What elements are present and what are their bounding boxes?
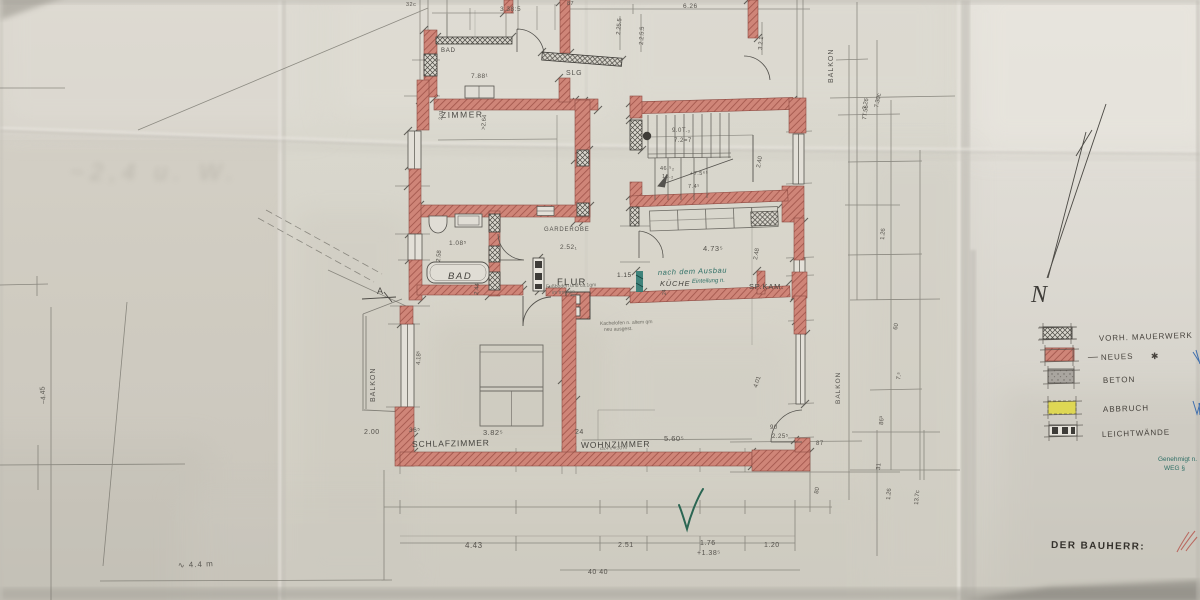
svg-text:4.73⁵: 4.73⁵ (703, 244, 723, 253)
svg-text:✱: ✱ (1151, 351, 1159, 361)
svg-text:32c: 32c (406, 2, 416, 8)
svg-text:SLG: SLG (566, 70, 582, 77)
svg-text:16.₂: 16.₂ (662, 174, 674, 180)
svg-text:24: 24 (575, 429, 584, 436)
svg-text:BAD: BAD (448, 271, 472, 282)
svg-text:Einteilung n.: Einteilung n. (692, 278, 725, 285)
svg-text:1.26: 1.26 (886, 487, 893, 500)
svg-text:BAD: BAD (441, 48, 456, 54)
svg-text:3.38:5: 3.38:5 (500, 6, 521, 13)
svg-text:∿ 4.4 m: ∿ 4.4 m (178, 559, 214, 570)
svg-text:BALKON: BALKON (828, 49, 835, 83)
svg-text:~2,4 u. W.: ~2,4 u. W. (70, 159, 239, 186)
svg-text:31: 31 (876, 462, 883, 470)
svg-text:87: 87 (816, 441, 824, 447)
svg-text:9.0T.₃: 9.0T.₃ (672, 128, 691, 134)
svg-text:BALKON: BALKON (835, 372, 842, 404)
svg-text:BETON: BETON (1103, 375, 1136, 385)
svg-text:SCHLAFZIMMER: SCHLAFZIMMER (412, 438, 490, 449)
svg-text:2.44: 2.44 (474, 282, 481, 295)
svg-text:2.00: 2.00 (364, 429, 380, 436)
svg-text:90: 90 (770, 425, 778, 431)
svg-text:GARDEROBE: GARDEROBE (544, 227, 590, 233)
svg-text:13.7c: 13.7c (914, 490, 921, 505)
svg-text:ZIMMER: ZIMMER (441, 109, 484, 120)
svg-text:2.58: 2.58 (436, 249, 443, 262)
svg-text:DER BAUHERR:: DER BAUHERR: (1051, 540, 1145, 553)
svg-text:40 40: 40 40 (588, 569, 608, 576)
svg-text:+1.38⁵: +1.38⁵ (697, 550, 721, 557)
svg-text:1.15: 1.15 (617, 272, 632, 279)
svg-text:87: 87 (567, 1, 574, 7)
svg-text:NEUES: NEUES (1101, 352, 1134, 362)
svg-text:N: N (1030, 282, 1049, 308)
svg-text:3.82⁵: 3.82⁵ (483, 428, 503, 437)
svg-text:6.26: 6.26 (683, 3, 698, 10)
svg-text:1.20: 1.20 (764, 542, 780, 549)
svg-text:1.26: 1.26 (880, 227, 887, 240)
svg-text:7.88¹: 7.88¹ (471, 73, 489, 80)
svg-text:SP.KAM.: SP.KAM. (749, 282, 784, 291)
svg-text:7.4⁵: 7.4⁵ (688, 183, 700, 190)
svg-text:86³: 86³ (879, 416, 886, 425)
svg-text:KÜCHE: KÜCHE (660, 279, 690, 288)
svg-text:2.52₁: 2.52₁ (560, 244, 578, 251)
svg-text:2.2.5.5: 2.2.5.5 (639, 26, 646, 45)
svg-text:5.60⁵: 5.60⁵ (664, 434, 684, 443)
svg-text:4.43: 4.43 (465, 541, 483, 550)
svg-text:ABBRUCH: ABBRUCH (1103, 403, 1149, 414)
svg-text:2.25⁵: 2.25⁵ (772, 433, 789, 440)
svg-text:ca.4 x 4.30 m: ca.4 x 4.30 m (600, 445, 627, 451)
svg-text:2.01: 2.01 (438, 110, 445, 120)
svg-text:Genehmigt n.: Genehmigt n. (1158, 456, 1197, 463)
svg-text:im trocken: im trocken (552, 289, 575, 296)
svg-text:BALKON: BALKON (370, 368, 377, 402)
svg-text:1.76: 1.76 (700, 540, 716, 547)
svg-text:WEG §: WEG § (1164, 465, 1185, 472)
svg-text:4.18⁵: 4.18⁵ (415, 350, 423, 365)
svg-text:46.⁵₂: 46.⁵₂ (660, 165, 675, 172)
svg-text:1.08⁵: 1.08⁵ (449, 240, 467, 247)
svg-text:+7.5⁶⁵: +7.5⁶⁵ (690, 170, 708, 177)
svg-text:36⁵: 36⁵ (409, 427, 420, 434)
svg-text:7.2=7: 7.2=7 (674, 138, 692, 144)
svg-text:2.51: 2.51 (618, 542, 634, 549)
svg-text:neu ausgest.: neu ausgest. (604, 326, 633, 333)
svg-text:A: A (377, 286, 383, 296)
svg-text:24: 24 (662, 289, 668, 295)
svg-text:3.2.1: 3.2.1 (758, 36, 765, 50)
